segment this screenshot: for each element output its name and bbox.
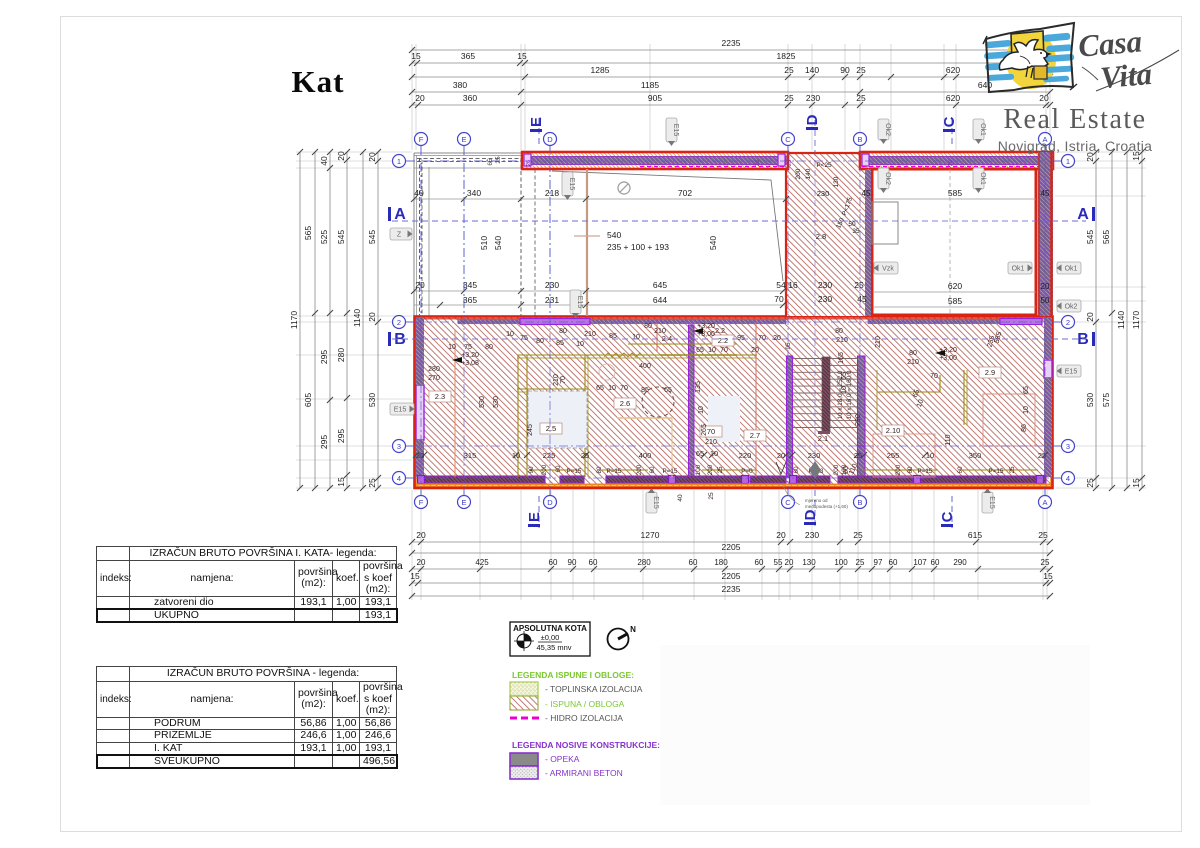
svg-text:620: 620	[948, 281, 962, 291]
svg-text:20: 20	[416, 530, 426, 540]
svg-text:100: 100	[841, 464, 848, 475]
svg-text:55: 55	[774, 558, 783, 567]
svg-text:290: 290	[855, 414, 862, 426]
svg-text:40: 40	[319, 156, 329, 166]
svg-text:25: 25	[367, 478, 377, 488]
svg-text:Vita: Vita	[1099, 56, 1154, 95]
svg-text:P=15: P=15	[663, 468, 678, 475]
svg-text:90: 90	[568, 558, 577, 567]
svg-text:640: 640	[978, 80, 992, 90]
svg-text:70: 70	[774, 294, 784, 304]
svg-text:60: 60	[589, 558, 598, 567]
svg-text:135: 135	[695, 381, 702, 393]
svg-text:80: 80	[644, 323, 652, 330]
svg-text:65: 65	[664, 387, 672, 394]
svg-text:565: 565	[1101, 230, 1111, 244]
svg-text:B: B	[857, 135, 862, 144]
svg-text:Ok1: Ok1	[979, 172, 986, 185]
svg-text:1140: 1140	[1116, 311, 1126, 330]
svg-text:2.9: 2.9	[985, 368, 995, 377]
svg-text:315: 315	[464, 451, 477, 460]
svg-text:400: 400	[639, 363, 651, 370]
svg-text:međupodesta (+1,60): međupodesta (+1,60)	[805, 504, 848, 509]
svg-text:585: 585	[948, 296, 962, 306]
svg-text:70: 70	[720, 347, 728, 354]
svg-text:20: 20	[367, 312, 377, 322]
svg-text:C: C	[939, 511, 956, 522]
svg-text:530: 530	[1085, 393, 1095, 407]
svg-text:110: 110	[945, 434, 952, 445]
svg-text:16: 16	[788, 280, 798, 290]
svg-text:218: 218	[545, 188, 559, 198]
svg-text:280: 280	[428, 366, 440, 373]
svg-text:200: 200	[636, 464, 643, 475]
svg-text:20: 20	[415, 93, 425, 103]
svg-text:70: 70	[930, 373, 938, 380]
svg-text:2.1: 2.1	[818, 434, 828, 443]
svg-text:E15: E15	[576, 296, 583, 309]
svg-text:60: 60	[889, 558, 898, 567]
svg-text:70: 70	[620, 385, 628, 392]
svg-text:2235: 2235	[722, 584, 741, 594]
svg-text:230: 230	[818, 294, 832, 304]
svg-text:2.10: 2.10	[886, 426, 901, 435]
svg-text:380: 380	[453, 80, 467, 90]
svg-text:Vzk: Vzk	[882, 266, 894, 273]
svg-text:80: 80	[596, 466, 603, 474]
svg-text:540: 540	[607, 230, 621, 240]
svg-text:N: N	[630, 625, 636, 634]
svg-text:20: 20	[336, 151, 346, 161]
svg-text:45: 45	[862, 189, 871, 198]
svg-text:P<25: P<25	[816, 162, 832, 169]
svg-text:+3,00: +3,00	[939, 355, 957, 362]
svg-text:510: 510	[479, 236, 489, 250]
svg-text:40: 40	[677, 494, 684, 502]
svg-text:230: 230	[806, 93, 820, 103]
svg-text:365: 365	[461, 51, 475, 61]
svg-text:360: 360	[463, 93, 477, 103]
svg-text:210: 210	[836, 337, 848, 344]
svg-text:60: 60	[907, 466, 914, 474]
svg-text:140: 140	[805, 168, 812, 179]
svg-text:20: 20	[1085, 312, 1095, 322]
svg-text:mjereno od: mjereno od	[805, 498, 828, 503]
svg-text:60: 60	[689, 558, 698, 567]
svg-text:245: 245	[527, 424, 534, 436]
svg-text:80: 80	[485, 344, 493, 351]
svg-text:P=15: P=15	[607, 468, 622, 475]
svg-text:E15: E15	[672, 124, 679, 137]
svg-text:85: 85	[641, 387, 649, 394]
svg-text:45,35 mnv: 45,35 mnv	[536, 643, 571, 652]
svg-text:2.5: 2.5	[546, 424, 556, 433]
svg-text:60: 60	[957, 466, 964, 474]
svg-text:95: 95	[785, 342, 792, 350]
svg-text:365: 365	[463, 295, 477, 305]
svg-text:210: 210	[907, 359, 919, 366]
svg-text:Ok1: Ok1	[1065, 266, 1078, 273]
svg-text:E: E	[461, 135, 466, 144]
svg-text:1185: 1185	[641, 80, 660, 90]
svg-text:20: 20	[776, 530, 786, 540]
svg-text:75: 75	[464, 344, 472, 351]
svg-text:255: 255	[887, 451, 900, 460]
svg-text:140: 140	[805, 65, 819, 75]
svg-text:3: 3	[1066, 442, 1070, 451]
svg-text:15: 15	[517, 51, 527, 61]
svg-text:D: D	[804, 114, 821, 125]
svg-text:295: 295	[319, 350, 329, 364]
svg-text:1170: 1170	[1131, 311, 1141, 330]
svg-text:80: 80	[559, 328, 567, 335]
svg-text:530: 530	[479, 396, 486, 408]
svg-text:90: 90	[528, 466, 535, 474]
svg-text:15: 15	[410, 571, 420, 581]
svg-text:10: 10	[698, 406, 705, 414]
svg-text:210: 210	[553, 374, 560, 386]
svg-text:25: 25	[495, 156, 502, 164]
svg-text:25: 25	[717, 466, 724, 474]
svg-text:- ARMIRANI BETON: - ARMIRANI BETON	[545, 768, 623, 778]
svg-text:Ok1: Ok1	[1012, 266, 1025, 273]
svg-text:25: 25	[854, 280, 864, 290]
svg-text:D: D	[547, 498, 553, 507]
svg-text:45: 45	[857, 294, 867, 304]
svg-text:1285: 1285	[591, 65, 610, 75]
svg-text:25: 25	[854, 451, 862, 460]
svg-text:E: E	[526, 512, 543, 522]
svg-text:20: 20	[417, 558, 426, 567]
svg-text:2.2: 2.2	[715, 328, 725, 335]
svg-text:565: 565	[303, 226, 313, 240]
svg-text:200: 200	[707, 464, 714, 475]
svg-text:60: 60	[931, 558, 940, 567]
svg-text:295: 295	[319, 435, 329, 449]
svg-text:90: 90	[840, 65, 850, 75]
svg-text:65: 65	[696, 347, 704, 354]
svg-text:200: 200	[795, 168, 802, 179]
svg-text:25: 25	[784, 93, 794, 103]
svg-text:20: 20	[773, 335, 781, 342]
svg-text:C: C	[785, 135, 791, 144]
svg-text:180: 180	[714, 558, 728, 567]
svg-text:4: 4	[1066, 474, 1070, 483]
svg-text:65: 65	[1023, 386, 1030, 394]
svg-text:345: 345	[463, 280, 477, 290]
svg-text:E15: E15	[394, 407, 407, 414]
svg-text:+3,20: +3,20	[697, 323, 715, 330]
svg-text:E: E	[528, 117, 545, 127]
svg-text:Ok2: Ok2	[1065, 304, 1078, 311]
svg-text:Real Estate: Real Estate	[1003, 104, 1146, 135]
svg-text:210: 210	[705, 439, 717, 446]
svg-text:2235: 2235	[722, 38, 741, 48]
svg-text:B: B	[857, 498, 862, 507]
svg-text:Kat: Kat	[292, 64, 345, 99]
svg-text:65: 65	[841, 372, 848, 380]
svg-text:95: 95	[737, 335, 745, 342]
svg-text:530: 530	[367, 393, 377, 407]
svg-text:290: 290	[953, 558, 967, 567]
svg-text:97: 97	[874, 558, 883, 567]
svg-text:1170: 1170	[289, 311, 299, 330]
svg-text:130: 130	[833, 176, 840, 187]
svg-text:620: 620	[946, 65, 960, 75]
svg-text:Ok2: Ok2	[884, 123, 891, 136]
svg-text:10: 10	[1023, 406, 1030, 414]
svg-text:265: 265	[701, 424, 708, 436]
svg-text:2205: 2205	[722, 571, 741, 581]
svg-text:B: B	[1077, 331, 1089, 348]
svg-text:LEGENDA ISPUNE I OBLOGE:: LEGENDA ISPUNE I OBLOGE:	[512, 670, 634, 680]
svg-text:540: 540	[493, 236, 503, 250]
svg-text:225: 225	[543, 451, 556, 460]
svg-text:905: 905	[648, 93, 662, 103]
svg-text:10: 10	[506, 331, 514, 338]
svg-text:E: E	[461, 498, 466, 507]
svg-text:85: 85	[556, 340, 564, 347]
svg-text:295: 295	[336, 429, 346, 443]
svg-text:25: 25	[1041, 558, 1050, 567]
svg-text:65: 65	[596, 385, 604, 392]
svg-text:20: 20	[751, 347, 759, 354]
svg-text:P=15: P=15	[918, 468, 933, 475]
svg-text:340: 340	[467, 188, 481, 198]
svg-text:200: 200	[541, 464, 548, 475]
svg-text:270: 270	[428, 375, 440, 382]
svg-text:60: 60	[649, 466, 656, 474]
svg-text:E15: E15	[568, 178, 575, 191]
svg-text:- OPEKA: - OPEKA	[545, 754, 580, 764]
svg-text:235 + 100 + 193: 235 + 100 + 193	[607, 242, 669, 252]
svg-text:2.4: 2.4	[662, 334, 672, 343]
svg-text:A: A	[1042, 498, 1047, 507]
svg-text:Z: Z	[397, 232, 402, 239]
svg-text:F: F	[419, 135, 424, 144]
svg-text:10: 10	[576, 341, 584, 348]
svg-text:3: 3	[397, 442, 401, 451]
svg-text:230: 230	[818, 280, 832, 290]
svg-text:545: 545	[1085, 230, 1095, 244]
svg-text:230: 230	[805, 530, 819, 540]
svg-text:70: 70	[707, 427, 715, 436]
svg-text:25: 25	[1085, 478, 1095, 488]
svg-text:50: 50	[848, 221, 856, 228]
svg-text:E15: E15	[652, 496, 659, 509]
svg-text:2.2: 2.2	[718, 336, 728, 345]
svg-text:15: 15	[336, 477, 346, 487]
svg-text:1825: 1825	[777, 51, 796, 61]
svg-text:10: 10	[632, 334, 640, 341]
svg-text:2.3: 2.3	[435, 392, 445, 401]
svg-text:210: 210	[584, 331, 596, 338]
svg-text:545: 545	[336, 230, 346, 244]
svg-text:20: 20	[1039, 93, 1049, 103]
svg-text:230: 230	[808, 451, 821, 460]
svg-text:F: F	[419, 498, 424, 507]
svg-text:1270: 1270	[641, 530, 660, 540]
svg-text:585: 585	[948, 188, 962, 198]
svg-text:1140: 1140	[352, 309, 362, 328]
svg-text:25: 25	[784, 65, 794, 75]
svg-text:575: 575	[1101, 393, 1111, 407]
svg-text:- HIDRO IZOLACIJA: - HIDRO IZOLACIJA	[545, 713, 623, 723]
svg-text:645: 645	[653, 280, 667, 290]
svg-text:10: 10	[708, 347, 716, 354]
svg-text:100: 100	[834, 558, 848, 567]
svg-text:25: 25	[856, 558, 865, 567]
svg-text:20: 20	[785, 558, 794, 567]
svg-text:B: B	[394, 331, 406, 348]
svg-text:702: 702	[678, 188, 692, 198]
svg-text:20: 20	[367, 152, 377, 162]
svg-text:±0,00: ±0,00	[541, 633, 560, 642]
svg-text:Ok2: Ok2	[884, 172, 891, 185]
svg-text:620: 620	[946, 93, 960, 103]
svg-text:220: 220	[739, 451, 752, 460]
svg-text:615: 615	[968, 530, 982, 540]
svg-text:2: 2	[1066, 318, 1070, 327]
svg-text:P=15: P=15	[567, 468, 582, 475]
svg-text:15: 15	[411, 51, 421, 61]
svg-text:E15: E15	[1065, 369, 1078, 376]
svg-text:107: 107	[913, 558, 927, 567]
svg-text:540: 540	[708, 236, 718, 250]
svg-text:70: 70	[758, 335, 766, 342]
svg-text:25: 25	[856, 93, 866, 103]
svg-text:15: 15	[1043, 571, 1053, 581]
svg-text:644: 644	[653, 295, 667, 305]
svg-text:605: 605	[303, 393, 313, 407]
svg-text:70: 70	[560, 376, 567, 384]
svg-text:230: 230	[817, 189, 830, 198]
svg-text:10: 10	[841, 386, 848, 394]
svg-text:60: 60	[549, 558, 558, 567]
svg-text:25: 25	[1009, 466, 1016, 474]
svg-text:231: 231	[545, 295, 559, 305]
svg-text:C: C	[785, 498, 791, 507]
svg-text:35: 35	[852, 228, 860, 235]
svg-text:280: 280	[336, 348, 346, 362]
svg-text:2.7: 2.7	[750, 431, 760, 440]
svg-text:210: 210	[875, 336, 882, 348]
svg-text:Novigrad, Istria, Croatia: Novigrad, Istria, Croatia	[998, 138, 1153, 154]
svg-text:E15: E15	[988, 496, 995, 509]
svg-text:200: 200	[833, 464, 840, 475]
svg-text:A: A	[394, 206, 406, 223]
svg-text:10: 10	[608, 385, 616, 392]
svg-text:25: 25	[856, 65, 866, 75]
svg-text:1: 1	[1066, 157, 1070, 166]
svg-text:- TOPLINSKA IZOLACIJA: - TOPLINSKA IZOLACIJA	[545, 684, 643, 694]
svg-text:75: 75	[520, 335, 528, 342]
svg-text:P=0: P=0	[741, 468, 753, 475]
svg-text:80: 80	[835, 328, 843, 335]
svg-text:100: 100	[695, 464, 702, 475]
svg-text:C: C	[941, 116, 958, 127]
svg-text:D: D	[547, 135, 553, 144]
svg-text:65: 65	[487, 158, 494, 166]
svg-text:60: 60	[555, 465, 562, 473]
svg-text:425: 425	[475, 558, 489, 567]
svg-text:- ISPUNA / OBLOGA: - ISPUNA / OBLOGA	[545, 699, 625, 709]
svg-text:25: 25	[708, 492, 715, 500]
svg-text:545: 545	[367, 230, 377, 244]
svg-text:54: 54	[776, 280, 786, 290]
svg-text:230: 230	[545, 280, 559, 290]
svg-text:60: 60	[755, 558, 764, 567]
svg-text:2.8: 2.8	[816, 232, 826, 241]
svg-text:350: 350	[969, 451, 982, 460]
svg-text:530: 530	[493, 396, 500, 408]
svg-text:20: 20	[777, 451, 785, 460]
svg-text:25: 25	[1038, 530, 1048, 540]
svg-text:P=15: P=15	[989, 468, 1004, 475]
svg-text:A: A	[1077, 206, 1089, 223]
svg-text:D: D	[802, 509, 819, 520]
svg-text:130: 130	[802, 558, 816, 567]
svg-text:165: 165	[838, 352, 845, 364]
svg-text:Ok1: Ok1	[979, 123, 986, 136]
svg-text:2.6: 2.6	[620, 399, 630, 408]
svg-text:2: 2	[397, 318, 401, 327]
svg-text:LEGENDA NOSIVE KONSTRUKCIJE:: LEGENDA NOSIVE KONSTRUKCIJE:	[512, 740, 660, 750]
svg-text:1: 1	[397, 157, 401, 166]
svg-text:400: 400	[639, 451, 652, 460]
svg-text:15: 15	[1131, 478, 1141, 488]
svg-text:60: 60	[793, 466, 800, 474]
svg-text:2205: 2205	[722, 542, 741, 552]
svg-text:525: 525	[319, 230, 329, 244]
svg-text:10: 10	[448, 344, 456, 351]
svg-text:200: 200	[895, 464, 902, 475]
svg-text:280: 280	[637, 558, 651, 567]
svg-text:210: 210	[654, 328, 666, 335]
svg-text:25: 25	[853, 530, 863, 540]
svg-text:4: 4	[397, 474, 401, 483]
svg-text:80: 80	[909, 350, 917, 357]
svg-text:86: 86	[1021, 424, 1028, 432]
